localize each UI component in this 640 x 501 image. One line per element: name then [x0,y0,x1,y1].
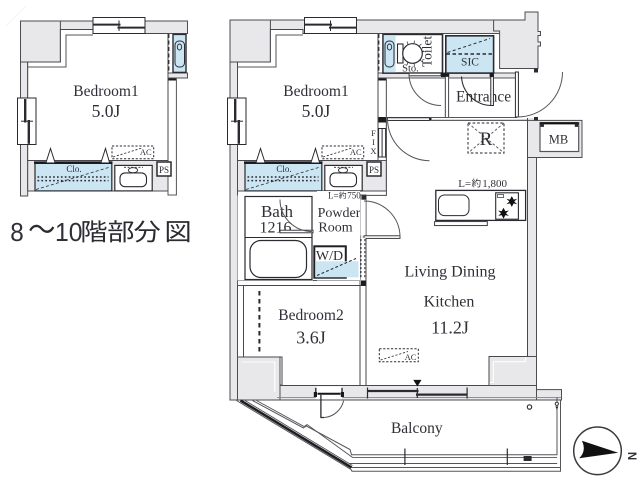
svg-text:Powder: Powder [318,206,361,221]
svg-text:Clo.: Clo. [276,164,291,174]
svg-text:Sto.: Sto. [402,63,419,74]
svg-text:X: X [370,146,376,156]
svg-text:Bedroom1: Bedroom1 [283,83,348,100]
svg-text:PS: PS [369,165,379,175]
svg-text:11.2J: 11.2J [431,318,469,338]
svg-text:5.0J: 5.0J [92,101,121,121]
svg-text:10: 10 [55,217,83,247]
svg-text:Bedroom1: Bedroom1 [73,83,138,100]
svg-text:N: N [625,452,637,460]
svg-text:AC: AC [140,147,152,157]
svg-text:Kitchen: Kitchen [424,294,475,311]
svg-text:Bedroom2: Bedroom2 [278,307,343,324]
svg-text:AC: AC [405,352,417,362]
svg-text:Clo.: Clo. [66,164,81,174]
svg-text:Room: Room [318,221,352,236]
svg-text:8: 8 [10,217,23,247]
svg-text:L=: L= [458,178,471,190]
svg-text:MB: MB [549,133,568,147]
svg-text:750: 750 [347,191,361,201]
svg-text:L=: L= [328,191,339,201]
svg-text:PS: PS [159,165,169,175]
svg-text:1216: 1216 [260,219,292,236]
svg-text:Bath: Bath [261,202,294,221]
svg-text:Toilet: Toilet [420,36,435,68]
svg-text:AC: AC [350,147,362,157]
svg-text:R: R [480,129,493,150]
svg-text:Balcony: Balcony [391,420,443,437]
svg-text:Living Dining: Living Dining [404,264,495,281]
svg-text:SIC: SIC [461,56,479,68]
svg-text:Entrance: Entrance [456,89,511,106]
svg-text:1,800: 1,800 [482,178,507,190]
svg-text:5.0J: 5.0J [302,101,331,121]
svg-text:3.6J: 3.6J [296,328,326,348]
svg-text:W/D: W/D [316,249,343,264]
